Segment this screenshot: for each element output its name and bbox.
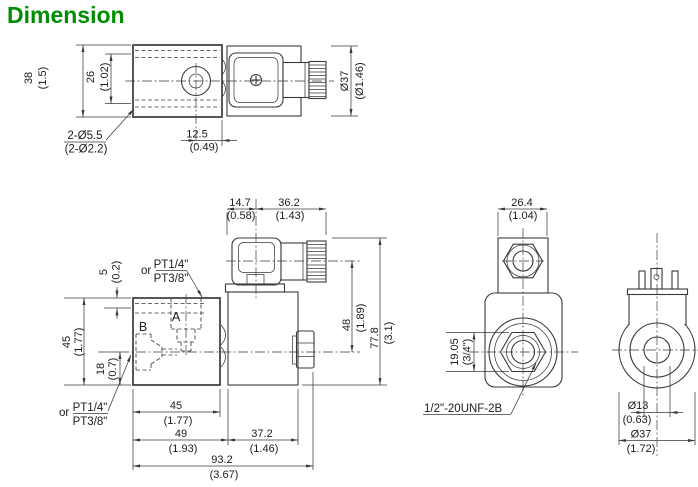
coil-view: Ø13 (0.63) Ø37 (1.72)	[612, 233, 698, 456]
dim-coil-bore-in: (0.63)	[623, 414, 652, 426]
dim-total-height-in: (3.1)	[383, 322, 395, 345]
label-port-a-thread: or PT1/4" PT3/8"	[141, 259, 202, 297]
dim-axis-to-connector-mm: 48	[341, 319, 353, 331]
dim-hole-offset-in: (0.49)	[190, 142, 219, 154]
dim-top-height-in: (1.5)	[37, 67, 49, 90]
dim-hole-spacing-mm: 26	[85, 71, 97, 83]
cable-gland-front	[281, 241, 326, 282]
dim-port-b-height-18: 18 (0.7)	[95, 352, 120, 385]
dim-cap-width-mm: 26.4	[511, 197, 532, 209]
dim-port-a-depth-5: 5 (0.2)	[90, 261, 131, 319]
port-b-or: or	[59, 407, 69, 419]
label-stem-thread: 1/2"-20UNF-2B	[423, 363, 536, 415]
dim-coil-outer-in: (1.72)	[627, 443, 656, 455]
dim-coil-outer-mm: Ø37	[631, 429, 652, 441]
dim-connector-offsets: 14.7 (0.58) 36.2 (1.43)	[227, 197, 326, 235]
dimension-page: Dimension	[0, 0, 698, 487]
dim-coil-dia-in: (Ø1.46)	[354, 62, 366, 99]
dim-hole-spacing-26: 26 (1.02)	[85, 54, 131, 104]
dim-cap-width-26-4: 26.4 (1.04)	[498, 197, 547, 236]
connector-tab	[247, 275, 264, 285]
dim-body-height-in: (1.77)	[73, 328, 85, 357]
dim-connector-left-in: (0.58)	[227, 210, 256, 222]
dim-total-length-mm: 93.2	[211, 454, 232, 466]
port-b-thread-2: PT3/8"	[73, 416, 108, 428]
connector-pins	[639, 269, 678, 290]
dim-coil-bore-mm: Ø13	[628, 400, 649, 412]
stem-thread-text: 1/2"-20UNF-2B	[424, 403, 503, 415]
mounting-holes-leader	[106, 109, 134, 140]
dim-total-height-mm: 77.8	[369, 327, 381, 348]
coil-front-outline	[228, 292, 298, 385]
label-mounting-holes: 2-Ø5.5 (2-Ø2.2)	[64, 109, 134, 156]
dim-hex-flats-mm: 19.05	[449, 338, 461, 366]
dim-port-b-height-mm: 18	[95, 363, 107, 375]
top-view: 38 (1.5) 26 (1.02) 2-Ø5.5 (2-Ø2.2)	[23, 45, 366, 156]
dim-body-to-coil-in: (1.93)	[169, 443, 198, 455]
port-a-label: A	[172, 310, 181, 324]
dim-connector-right-mm: 36.2	[278, 197, 299, 209]
dim-coil-width-in: (1.46)	[250, 443, 279, 455]
dimension-drawing: 38 (1.5) 26 (1.02) 2-Ø5.5 (2-Ø2.2)	[0, 0, 698, 487]
dim-total-length-in: (3.67)	[210, 469, 239, 481]
ground-pin	[651, 269, 662, 290]
mounting-holes-mm: 2-Ø5.5	[67, 130, 102, 142]
dim-top-height-mm: 38	[23, 72, 35, 84]
stem-thread-leader	[511, 363, 536, 414]
dim-hole-offset-12-5: 12.5 (0.49)	[181, 120, 237, 154]
dim-body-height-mm: 45	[61, 336, 73, 348]
dim-hole-offset-mm: 12.5	[186, 129, 207, 141]
coil-top-plate	[628, 289, 688, 295]
dim-coil-bore-13: Ø13 (0.63)	[623, 366, 683, 426]
retaining-nut-front	[293, 331, 315, 368]
port-a-thread-2: PT3/8"	[154, 273, 189, 285]
dim-port-a-depth-mm: 5	[98, 269, 110, 275]
dim-body-width-mm: 45	[170, 400, 182, 412]
mounting-hole-hidden-lines	[135, 51, 220, 108]
wave-washer-front	[221, 325, 226, 367]
dim-top-height-38: 38 (1.5)	[23, 45, 131, 117]
dim-coil-dia-mm: Ø37	[339, 71, 351, 92]
dim-hole-spacing-in: (1.02)	[99, 63, 111, 92]
port-a-thread-1: PT1/4"	[154, 259, 189, 271]
dim-hex-flats-in: (3/4")	[462, 339, 474, 366]
dim-lengths-bottom: 45 (1.77) 49 (1.93) 37.2 (1.46) 93.2 (3.…	[133, 372, 313, 481]
side-view: 26.4 (1.04) 19.05 (3/4") 1/2"-20UNF-2B	[423, 197, 578, 415]
port-a-thread-leader	[187, 271, 202, 297]
port-b-label: B	[139, 320, 147, 334]
dim-body-to-coil-mm: 49	[175, 428, 187, 440]
cable-gland-top	[283, 62, 326, 99]
dim-connector-right-in: (1.43)	[276, 210, 305, 222]
dim-port-a-depth-in: (0.2)	[111, 261, 123, 284]
mounting-holes-in: (2-Ø2.2)	[65, 144, 108, 156]
port-b-thread-1: PT1/4"	[73, 402, 108, 414]
dim-coil-width-mm: 37.2	[251, 428, 272, 440]
dim-port-b-height-in: (0.7)	[107, 358, 119, 381]
dim-body-width-in: (1.77)	[164, 415, 193, 427]
dim-axis-to-connector-in: (1.89)	[355, 304, 367, 333]
dim-connector-left-mm: 14.7	[229, 197, 250, 209]
port-a-or: or	[141, 265, 151, 277]
connector-screw-icon	[251, 75, 262, 86]
dim-coil-dia-37: Ø37 (Ø1.46)	[331, 46, 366, 116]
front-view: A B	[59, 197, 395, 481]
dim-cap-width-in: (1.04)	[509, 210, 538, 222]
